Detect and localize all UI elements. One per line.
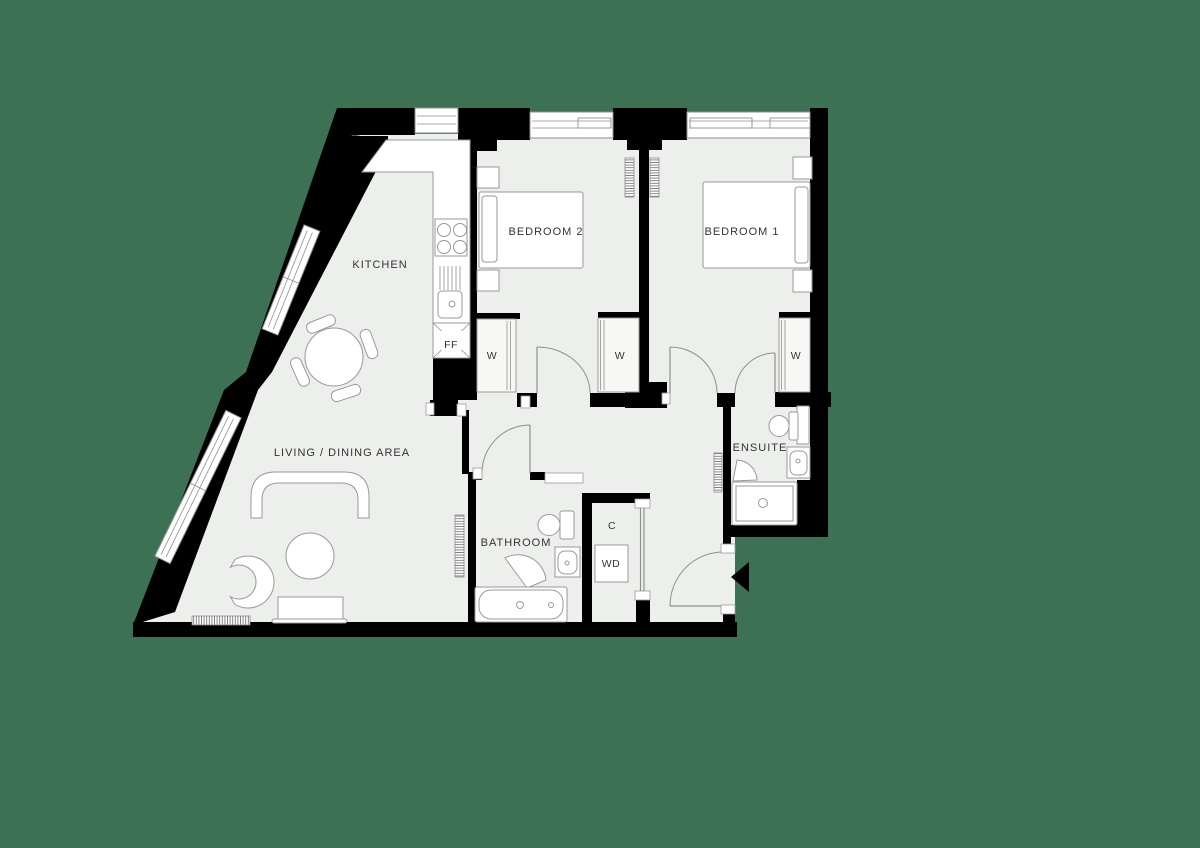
- fridge-freezer: FF: [433, 323, 470, 358]
- kitchen-window: [415, 108, 458, 133]
- wall-closet1-top: [470, 313, 520, 319]
- bed2-side-table-top: [477, 167, 499, 188]
- label-bathroom: BATHROOM: [481, 537, 552, 549]
- bathroom-sink: [555, 547, 580, 577]
- tv-unit: [272, 597, 347, 623]
- wall-bathroom-stub-ne: [530, 472, 545, 480]
- radiator-living-east: [455, 515, 464, 577]
- radiator-bedroom2: [625, 158, 634, 197]
- floor-plan-page: FF: [0, 0, 1200, 848]
- label-bedroom2: BEDROOM 2: [508, 226, 583, 238]
- bed1-pillow: [795, 187, 808, 263]
- floor-plan-svg: FF: [0, 0, 1200, 848]
- wall-cupboard-top: [592, 493, 638, 503]
- wall-right: [810, 108, 828, 480]
- label-kitchen: KITCHEN: [352, 259, 407, 271]
- hob: [435, 219, 467, 256]
- ensuite-shower: [732, 482, 797, 525]
- bedroom1-window: [687, 112, 810, 138]
- wall-closet3-top: [779, 312, 812, 318]
- bedroom2-window: [530, 112, 613, 138]
- ensuite-counter: [797, 406, 809, 444]
- label-bedroom1: BEDROOM 1: [704, 226, 779, 238]
- wall-window-pier: [613, 108, 687, 140]
- wall-top-bed2: [458, 108, 530, 140]
- wall-thin-corridor: [462, 410, 469, 474]
- wall-top-kitchen: [337, 108, 415, 135]
- coffee-table: [286, 533, 334, 579]
- dining-table: [305, 328, 363, 386]
- glazed-panel-bathroom: [545, 473, 583, 483]
- label-fridge-freezer: FF: [444, 339, 458, 351]
- wall-below-ff: [433, 358, 470, 400]
- label-cupboard: C: [608, 520, 616, 532]
- bed1-side-table-top: [793, 157, 812, 179]
- wall-ensuite-north: [775, 392, 831, 407]
- label-ensuite: ENSUITE: [733, 442, 788, 454]
- wall-bedroom-divider: [639, 148, 649, 382]
- label-washer-dryer: WD: [602, 558, 621, 570]
- label-living-dining: LIVING / DINING AREA: [274, 447, 410, 459]
- label-wardrobe-bed2-right: W: [615, 350, 625, 362]
- label-wardrobe-bed1: W: [791, 350, 801, 362]
- radiator-hall: [714, 453, 722, 492]
- wall-bathroom-east: [582, 493, 592, 622]
- bed1-side-table-bottom: [793, 270, 812, 292]
- label-wardrobe-bed2-left: W: [487, 350, 497, 362]
- wall-hall-east: [723, 393, 731, 553]
- radiator-living-south: [192, 616, 250, 625]
- radiator-bedroom1: [650, 158, 659, 197]
- wall-stub-bed1-doors: [717, 393, 735, 407]
- wall-kitchen-bed2: [470, 138, 477, 400]
- ensuite-sink: [787, 447, 810, 478]
- bed2-pillow: [482, 196, 497, 262]
- wall-bed2-east: [590, 393, 625, 407]
- bed2-side-table-bottom: [477, 270, 499, 291]
- wall-ensuite-south: [723, 525, 828, 537]
- wall-closet2-top: [598, 312, 639, 318]
- bathtub: [475, 587, 567, 622]
